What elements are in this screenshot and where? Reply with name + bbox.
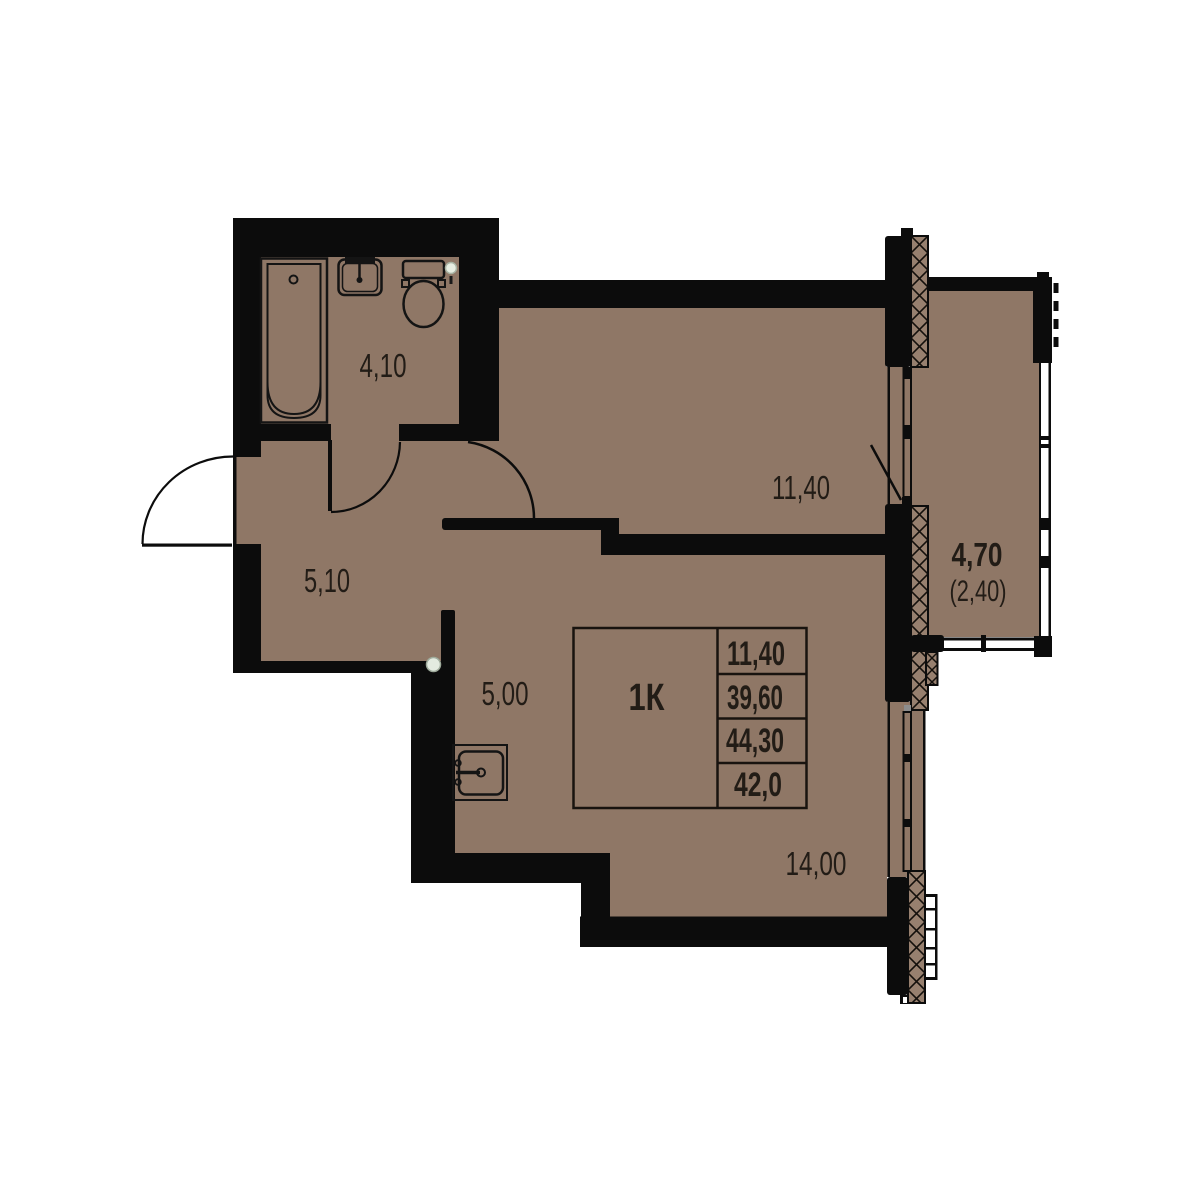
svg-text:(2,40): (2,40) — [950, 575, 1007, 608]
svg-text:42,0: 42,0 — [734, 766, 782, 804]
svg-text:44,30: 44,30 — [726, 722, 784, 760]
svg-text:11,40: 11,40 — [772, 469, 830, 506]
svg-text:1К: 1К — [629, 677, 666, 719]
svg-text:4,70: 4,70 — [952, 536, 1003, 573]
svg-text:39,60: 39,60 — [727, 679, 783, 717]
svg-text:14,00: 14,00 — [786, 845, 847, 882]
svg-text:5,00: 5,00 — [482, 675, 529, 712]
svg-text:4,10: 4,10 — [360, 347, 407, 384]
svg-text:11,40: 11,40 — [727, 635, 785, 673]
svg-text:5,10: 5,10 — [304, 562, 350, 599]
